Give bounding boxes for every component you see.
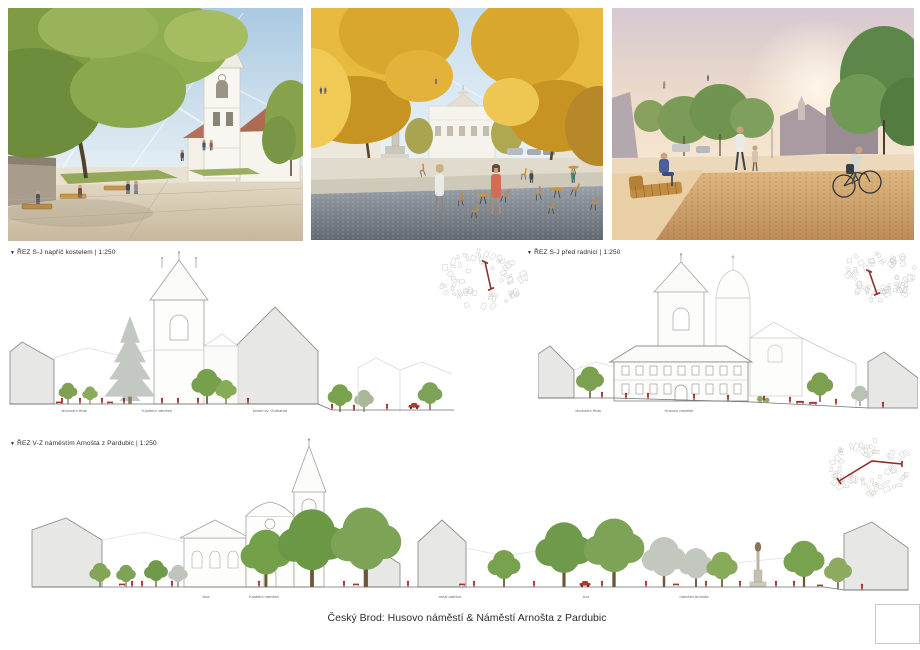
siteplan-key-1	[435, 248, 530, 315]
section-3-sublabel-2: areál radnice	[438, 594, 461, 599]
mid-tree	[405, 118, 433, 154]
section-3-sublabel-1: Kostelní náměstí	[249, 594, 279, 599]
ground-lines	[32, 587, 908, 590]
bell-tower-behind	[654, 253, 708, 346]
gray-spruce	[104, 316, 155, 404]
section-1-sublabel-0: obchodní třída	[61, 408, 87, 413]
render-church-square	[8, 8, 303, 241]
section-marker-icon: ▼	[527, 250, 532, 256]
presentation-board: ▼ŘEZ S-J napříč kostelem | 1:250	[0, 0, 920, 650]
section-1-sublabel-2: kostel sv. Gotharda	[253, 408, 287, 413]
stamp-box	[875, 604, 920, 644]
section-1-drawing	[2, 250, 460, 427]
render-sunset-street	[612, 8, 914, 240]
section-2-sublabel-1: Husovo náměstí	[665, 408, 694, 413]
siteplan-texture	[830, 439, 910, 497]
siteplan-key-3	[822, 437, 917, 502]
board-title: Český Brod: Husovo náměstí & Náměstí Arn…	[328, 612, 607, 624]
statue-fountain	[750, 542, 766, 587]
context-silhouettes	[32, 518, 908, 590]
section-3-sublabel-3: tvrz	[583, 594, 589, 599]
section-3-drawing	[4, 438, 916, 611]
section-1-sublabel-1: Kostelní náměstí	[142, 408, 172, 413]
right-context	[358, 358, 452, 412]
section-3-sublabel-0: fara	[203, 594, 210, 599]
section-3-sublabel-4: náměstí Arnošta	[680, 594, 709, 599]
siteplan-texture	[844, 251, 916, 302]
siteplan-key-2	[836, 249, 920, 309]
section-2-sublabel-0: obchodní třída	[575, 408, 601, 413]
town-hall	[610, 346, 752, 401]
render-autumn-cafe-square	[311, 8, 603, 240]
siteplan-texture	[440, 249, 528, 310]
section-cut-line	[482, 261, 494, 291]
